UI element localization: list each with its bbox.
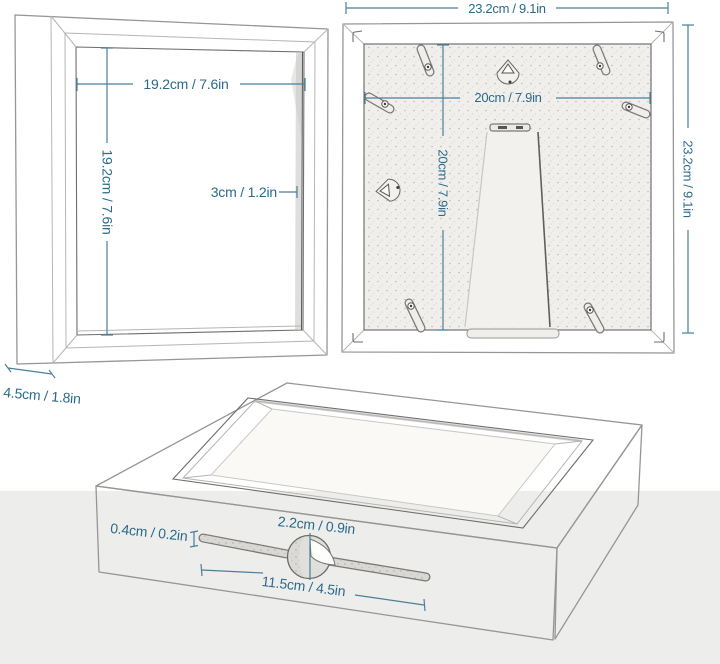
- easel-hinge: [490, 124, 530, 131]
- back-outer-width-label: 23.2cm / 9.1in: [468, 1, 546, 16]
- back-view-drawing: 23.2cm / 9.1in 23.2cm / 9.1in 20cm / 7.9…: [340, 0, 720, 400]
- easel-hinge-pin-right: [516, 126, 523, 129]
- front-dimensions: 19.2cm / 7.6in 19.2cm / 7.6in 3cm / 1.2i…: [3, 48, 305, 407]
- miter-top-right: [304, 29, 328, 52]
- board-width-label: 20cm / 7.9in: [474, 90, 541, 105]
- miter-top-left: [51, 16, 76, 47]
- front-frame: [15, 15, 328, 364]
- front-width-label: 19.2cm / 7.6in: [143, 76, 228, 92]
- miter-bottom-right: [303, 330, 327, 355]
- slot-left-arm: [203, 538, 292, 555]
- front-height-label: 19.2cm / 7.6in: [100, 149, 116, 234]
- miter-tr: [651, 22, 673, 44]
- easel-hinge-pin-left: [498, 126, 507, 129]
- hole-diameter-label: 2.2cm / 0.9in: [277, 513, 356, 537]
- perspective-view-drawing: 0.4cm / 0.2in 2.2cm / 0.9in 11.5cm / 4.5…: [0, 380, 720, 664]
- miter-bottom-left: [53, 335, 77, 363]
- easel-foot-bar: [467, 329, 559, 338]
- frame-side-edge: [51, 16, 53, 363]
- back-outer-height-label: 23.2cm / 9.1in: [681, 140, 696, 218]
- slot-height-label: 0.4cm / 0.2in: [110, 520, 189, 544]
- frame-outline: [15, 15, 328, 364]
- product-dimension-diagram: 19.2cm / 7.6in 19.2cm / 7.6in 3cm / 1.2i…: [0, 0, 720, 664]
- front-view-drawing: 19.2cm / 7.6in 19.2cm / 7.6in 3cm / 1.2i…: [0, 0, 340, 410]
- slot-right-arm: [329, 561, 426, 577]
- shadow-box-3d: [96, 383, 642, 640]
- corner-mark-bl: [353, 333, 363, 342]
- board-height-label: 20cm / 7.9in: [436, 149, 451, 216]
- box-recess-bottom: [211, 409, 555, 516]
- front-depth-label: 3cm / 1.2in: [211, 184, 277, 200]
- perspective-dimensions: 0.4cm / 0.2in 2.2cm / 0.9in 11.5cm / 4.5…: [110, 513, 425, 611]
- corner-mark-br: [654, 332, 664, 342]
- recess-edge-right: [555, 441, 582, 444]
- recess-edge-left: [183, 475, 211, 478]
